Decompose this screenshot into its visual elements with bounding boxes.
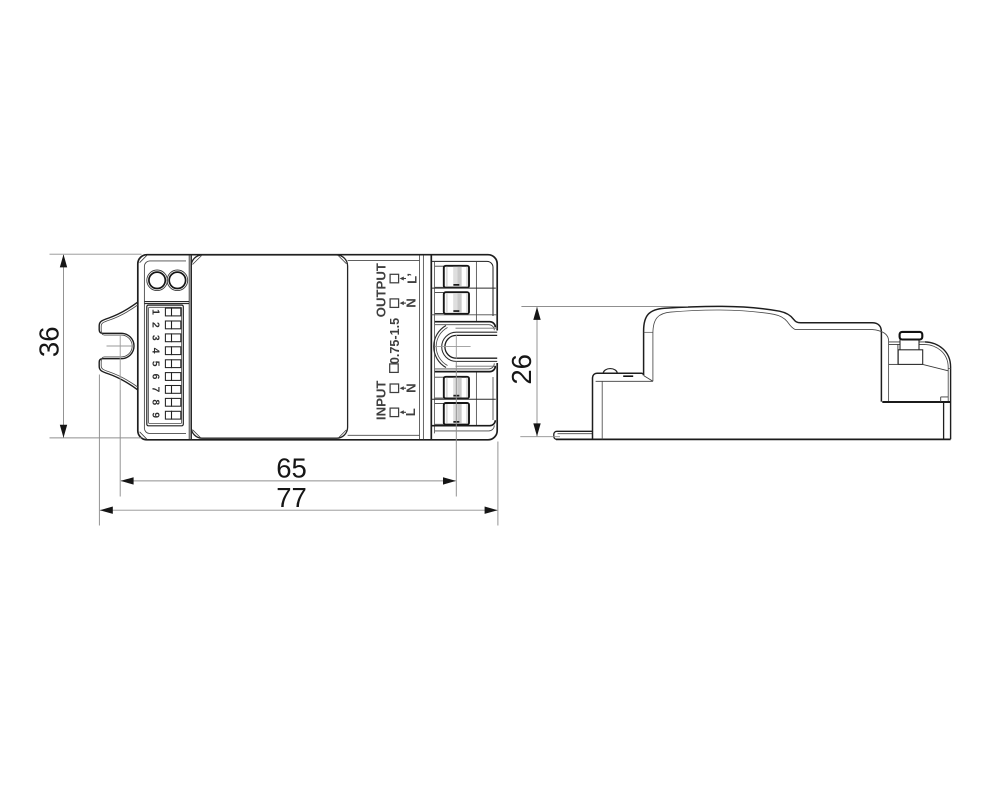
svg-text:N: N [403, 298, 418, 308]
svg-text:3: 3 [150, 335, 161, 341]
svg-text:OUTPUT: OUTPUT [373, 263, 388, 317]
svg-text:6: 6 [150, 374, 161, 380]
svg-text:N: N [403, 383, 418, 393]
svg-text:1: 1 [150, 309, 161, 315]
svg-text:77: 77 [276, 482, 307, 513]
svg-text:INPUT: INPUT [374, 381, 389, 421]
svg-text:L: L [403, 408, 418, 416]
svg-text:L’: L’ [404, 273, 419, 284]
svg-text:5: 5 [150, 361, 161, 367]
svg-text:9: 9 [150, 412, 161, 418]
svg-text:2: 2 [150, 322, 161, 328]
svg-text:65: 65 [276, 453, 307, 484]
svg-text:0.75-1.5: 0.75-1.5 [388, 318, 402, 364]
svg-text:26: 26 [506, 354, 537, 385]
svg-text:36: 36 [33, 327, 64, 358]
svg-text:4: 4 [150, 348, 161, 354]
svg-text:7: 7 [150, 387, 161, 393]
svg-text:8: 8 [150, 399, 161, 405]
